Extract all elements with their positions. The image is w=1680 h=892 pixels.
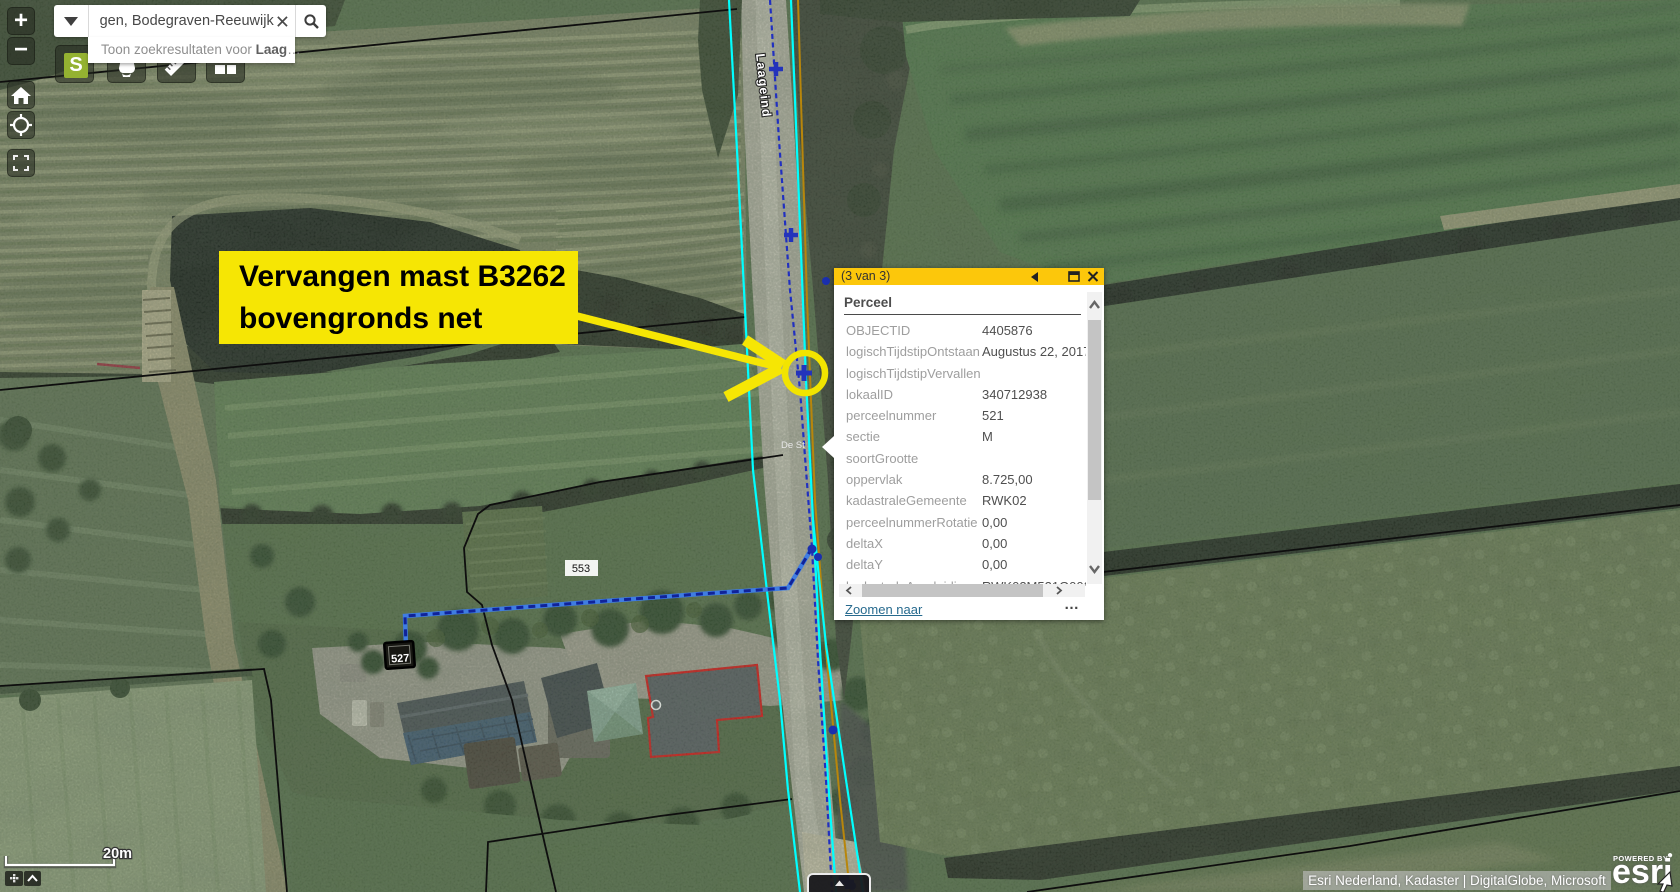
svg-text:De St: De St xyxy=(781,440,805,451)
svg-text:553: 553 xyxy=(572,563,590,575)
svg-text:20m: 20m xyxy=(103,846,132,862)
svg-text:527: 527 xyxy=(391,652,410,665)
